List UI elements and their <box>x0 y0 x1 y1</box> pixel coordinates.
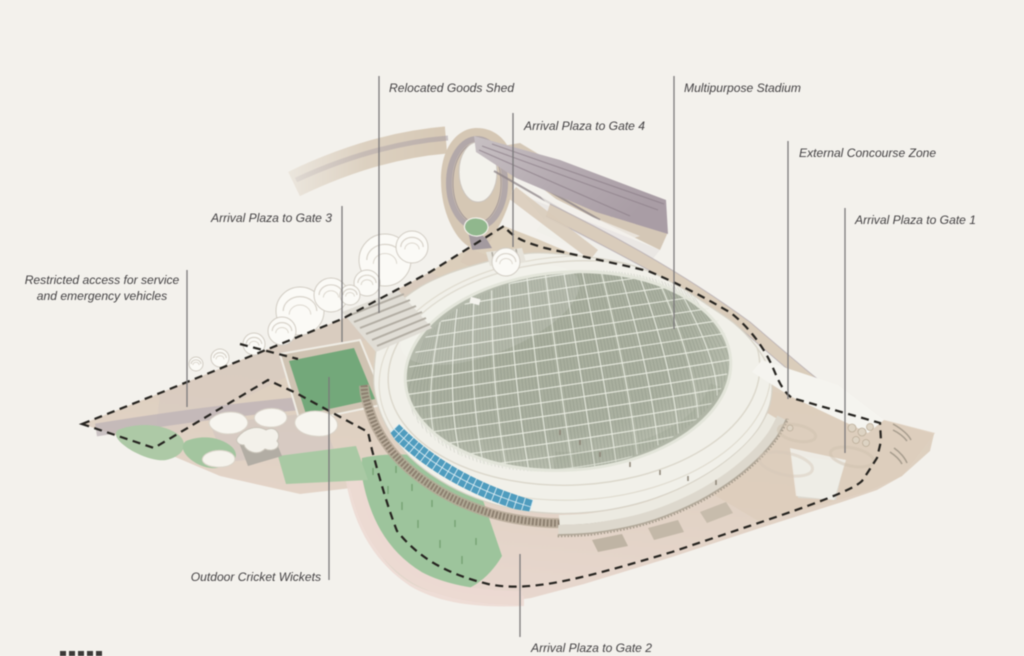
svg-text:Relocated Goods Shed: Relocated Goods Shed <box>389 81 515 95</box>
svg-text:Arrival Plaza to Gate 2: Arrival Plaza to Gate 2 <box>530 641 652 655</box>
svg-text:and emergency vehicles: and emergency vehicles <box>37 289 167 303</box>
svg-text:Outdoor Cricket Wickets: Outdoor Cricket Wickets <box>191 570 321 584</box>
svg-text:Multipurpose Stadium: Multipurpose Stadium <box>684 81 801 95</box>
svg-text:Arrival Plaza to Gate 4: Arrival Plaza to Gate 4 <box>523 119 645 133</box>
svg-text:Arrival Plaza to Gate 1: Arrival Plaza to Gate 1 <box>854 213 976 227</box>
svg-text:Restricted access for service: Restricted access for service <box>25 273 180 287</box>
svg-text:External Concourse Zone: External Concourse Zone <box>799 146 936 160</box>
svg-text:Arrival Plaza to Gate 3: Arrival Plaza to Gate 3 <box>210 211 332 225</box>
